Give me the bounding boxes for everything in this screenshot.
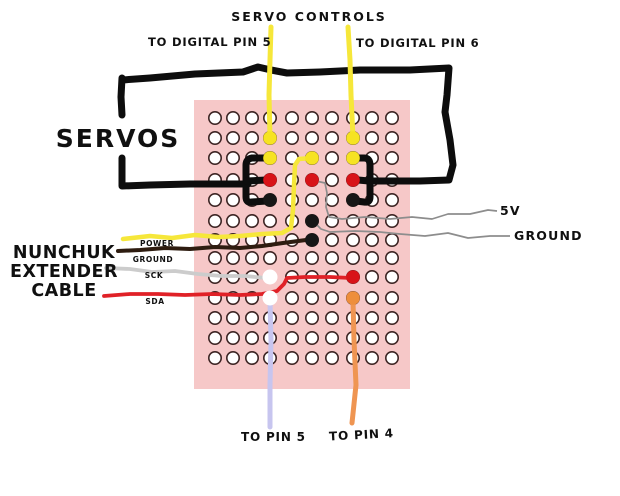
board-hole [326,352,338,364]
board-hole [264,215,276,227]
board-hole [209,332,221,344]
board-hole [227,112,239,124]
board-hole [386,252,398,264]
board-hole [326,292,338,304]
board-hole [306,312,318,324]
to-pin-4-label: TO PIN 4 [329,426,394,443]
board-hole [286,352,298,364]
board-hole [326,132,338,144]
board-hole [386,152,398,164]
board-hole [227,215,239,227]
board-hole [386,215,398,227]
wire-to-pin-4 [352,301,356,423]
solder-dot-yellow [263,131,277,145]
board-hole [386,234,398,246]
board-hole [306,332,318,344]
board-hole [366,132,378,144]
board-hole [209,194,221,206]
solder-dot-white [263,270,278,285]
nunchuk-label-line3: CABLE [31,281,96,301]
board-hole [366,112,378,124]
ground-right-label: GROUND [514,228,583,243]
board-hole [246,215,258,227]
to-pin-5-label: TO PIN 5 [241,430,306,444]
solder-dot-red [305,173,319,187]
solder-dot-black [346,193,360,207]
board-hole [209,215,221,227]
board-hole [366,271,378,283]
servo-loop-left-upper-wire [121,78,122,115]
solder-dot-black [305,233,319,247]
board-hole [209,312,221,324]
5v-label: 5V [500,203,521,218]
board-hole [366,234,378,246]
board-hole [209,112,221,124]
diagram-canvas: SERVO CONTROLS TO DIGITAL PIN 5 TO DIGIT… [0,0,620,496]
board-hole [227,132,239,144]
board-hole [209,252,221,264]
board-hole [227,312,239,324]
board-hole [347,252,359,264]
sda-wire-label: SDA [145,297,164,306]
board-hole [209,152,221,164]
board-hole [286,112,298,124]
board-hole [366,312,378,324]
board-hole [227,332,239,344]
to-digital-pin-5-label: TO DIGITAL PIN 5 [148,35,272,49]
board-hole [306,194,318,206]
board-hole [286,332,298,344]
board-hole [286,292,298,304]
solder-dot-yellow [305,151,319,165]
board-hole [227,194,239,206]
board-hole [306,132,318,144]
solder-dot-red [346,173,360,187]
board-hole [366,252,378,264]
board-hole [246,252,258,264]
board-hole [386,271,398,283]
board-hole [326,234,338,246]
board-hole [246,132,258,144]
board-hole [286,252,298,264]
to-digital-pin-6-label: TO DIGITAL PIN 6 [356,36,480,50]
solder-dot-red [346,270,360,284]
solder-dot-white [263,291,278,306]
board-hole [209,352,221,364]
board-hole [326,332,338,344]
board-hole [326,312,338,324]
solder-dot-orange [346,291,360,305]
board-hole [209,132,221,144]
board-hole [326,112,338,124]
board-hole [326,174,338,186]
board-hole [386,312,398,324]
board-hole [386,352,398,364]
sck-wire-label: SCK [145,271,164,280]
board-hole [386,132,398,144]
servo-connector-left-arm [247,180,266,181]
board-hole [227,252,239,264]
board-hole [386,332,398,344]
board-hole [227,152,239,164]
board-hole [246,332,258,344]
board-hole [246,112,258,124]
solder-dot-yellow [263,151,277,165]
board-hole [366,292,378,304]
board-hole [286,312,298,324]
solder-dot-black [305,214,319,228]
servo-controls-label: SERVO CONTROLS [231,9,387,24]
board-hole [386,292,398,304]
power-wire-label: POWER [140,239,174,248]
board-hole [386,194,398,206]
board-hole [326,252,338,264]
board-hole [246,352,258,364]
board-hole [264,252,276,264]
solder-dot-black [263,193,277,207]
board-hole [366,332,378,344]
solder-dot-yellow [346,151,360,165]
board-hole [347,234,359,246]
board-hole [306,352,318,364]
board-hole [246,312,258,324]
board-hole [326,152,338,164]
board-hole [306,292,318,304]
board-hole [306,112,318,124]
nunchuk-label-line2: EXTENDER [10,262,118,282]
board-hole [366,352,378,364]
wire-to-pin-5 [270,301,271,427]
solder-dot-yellow [346,131,360,145]
ground-wire-label: GROUND [133,255,174,264]
board-hole [286,132,298,144]
servos-label: SERVOS [56,124,181,153]
solder-dot-red [263,173,277,187]
board-hole [347,215,359,227]
nunchuk-label-line1: NUNCHUK [13,243,116,263]
board-hole [386,112,398,124]
board-hole [227,352,239,364]
wiring-diagram: SERVO CONTROLS TO DIGITAL PIN 5 TO DIGIT… [0,0,620,496]
board-hole [306,252,318,264]
perfboard [194,100,410,389]
